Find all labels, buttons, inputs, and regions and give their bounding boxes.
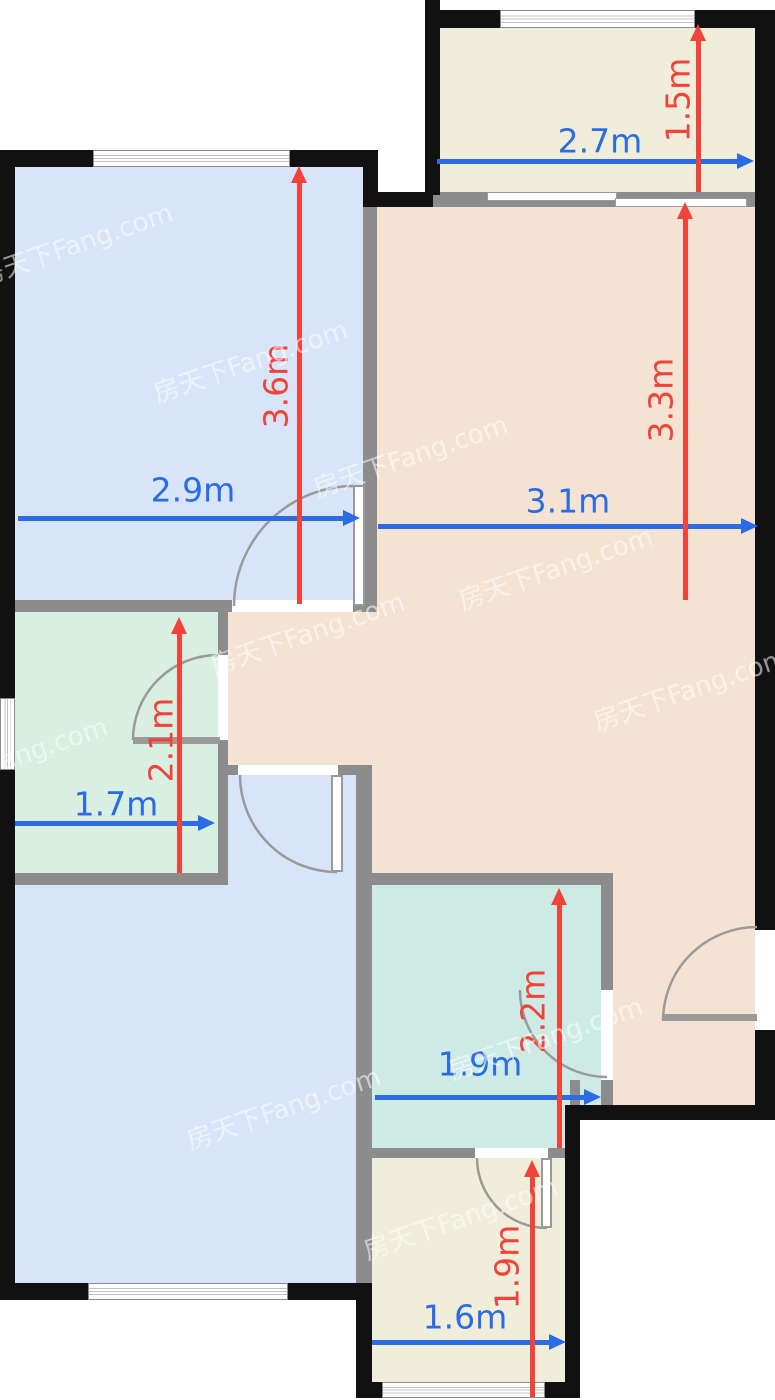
dim-arrowhead-bedroom1-width xyxy=(343,510,360,526)
dim-label-bathroom-height: 2.1m xyxy=(145,698,178,783)
dim-arrow-living-height xyxy=(683,218,688,600)
dim-arrowhead-bathroom-width xyxy=(198,815,215,831)
dim-arrow-bedroom1-width xyxy=(18,516,343,521)
dim-arrowhead-balcony-width xyxy=(737,153,754,169)
dim-label-living-width: 3.1m xyxy=(526,485,611,518)
dim-arrowhead-kitchen-width xyxy=(584,1089,601,1105)
dim-label-living-height: 3.3m xyxy=(645,358,678,443)
dim-arrow-balcony2-width xyxy=(372,1340,549,1345)
dim-label-balcony2-height: 1.9m xyxy=(491,1225,524,1310)
dim-label-bedroom1-width: 2.9m xyxy=(151,474,236,507)
dim-arrowhead-living-width xyxy=(741,518,758,534)
dim-arrow-kitchen-width xyxy=(375,1095,584,1100)
door-arc-entry xyxy=(663,927,757,1021)
dim-arrowhead-kitchen-height xyxy=(551,888,567,905)
dim-arrowhead-balcony2-width xyxy=(549,1334,566,1350)
dim-arrowhead-bathroom-height xyxy=(171,617,187,634)
dim-arrow-bedroom1-height xyxy=(297,182,302,604)
door-arc-bedroom1 xyxy=(234,486,354,606)
floor-plan: 2.9m 3.6m 2.7m 1.5m 3.1m 3.3m 1.7m 2.1m … xyxy=(0,0,775,1400)
door-arc-bedroom2 xyxy=(240,775,337,872)
dim-label-balcony-height: 1.5m xyxy=(662,58,695,143)
dim-label-bathroom-width: 1.7m xyxy=(74,788,159,821)
dim-arrowhead-living-height xyxy=(677,202,693,219)
dim-arrowhead-balcony-height xyxy=(690,24,706,41)
dim-arrowhead-bedroom1-height xyxy=(291,166,307,183)
dim-label-balcony-width: 2.7m xyxy=(558,125,643,158)
